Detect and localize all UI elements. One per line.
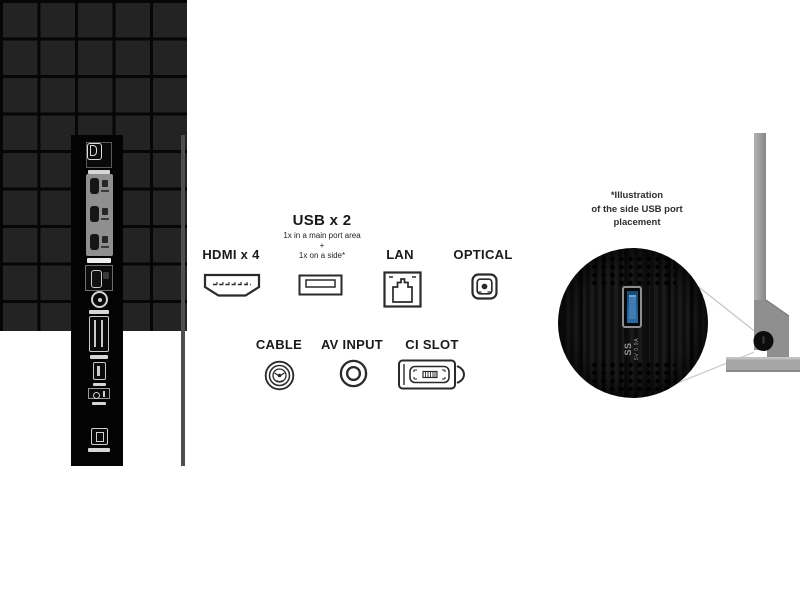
usb-label: USB x 2 [293, 212, 352, 229]
port-label-bar [90, 355, 108, 359]
hdmi-main-ports-strip [86, 174, 113, 256]
tv-stand-base [726, 357, 800, 372]
av-input-port-icon [339, 359, 368, 388]
usb-zoom-circle: SS 5V 0.9A [558, 248, 708, 398]
hdmi-port-2-icon [90, 206, 99, 222]
av-in-port-icon [88, 388, 110, 399]
usb-note-plus: + [320, 241, 325, 250]
hdmi-port-1-icon [90, 178, 99, 194]
optical-port-icon [87, 143, 102, 160]
port-gap-notch [754, 350, 767, 357]
hdmi-label: HDMI x 4 [202, 247, 259, 262]
antenna-port-icon [91, 428, 108, 445]
ci-slot-label: CI SLOT [405, 337, 458, 352]
side-usb-note: *Illustration of the side USB port place… [557, 189, 717, 230]
ci-slot-icon [397, 357, 465, 392]
ci-slot-port-icon [89, 316, 109, 352]
port-label-bar [89, 310, 109, 314]
tv-side-bar [754, 133, 766, 357]
hdmi-port-4 [85, 265, 113, 291]
port-label-bar [88, 448, 110, 452]
cable-label: CABLE [256, 337, 302, 352]
optical-label: OPTICAL [453, 247, 512, 262]
side-usb-note-line2: of the side USB port [557, 203, 717, 217]
vent-dots-top [590, 255, 676, 285]
tv-side-bulge [754, 300, 789, 357]
optical-port-icon [471, 273, 498, 300]
usb-rating-text: 5V 0.9A [634, 338, 640, 360]
side-usb-note-line3: placement [557, 216, 717, 230]
usb-port-icon [298, 274, 343, 296]
tv-ports-diagram: HDMI x 4 USB x 2 1x in a main port area … [0, 0, 800, 600]
usb-superspeed-label: SS 5V 0.9A [619, 319, 645, 379]
port-label-bar [92, 402, 106, 405]
lan-label: LAN [386, 247, 414, 262]
av-input-label: AV INPUT [321, 337, 383, 352]
usb-note-line1: 1x in a main port area [283, 231, 360, 240]
hdmi-port-3-icon [90, 234, 99, 250]
hdmi-port-4-icon [91, 270, 102, 288]
hdmi-port-icon [203, 273, 261, 298]
lan-port-icon [383, 271, 422, 308]
usb-note-line2: 1x on a side* [299, 251, 345, 260]
port-label-bar [87, 258, 111, 263]
antenna-cable-port-icon [91, 291, 108, 308]
usb-main-port-icon [93, 362, 106, 380]
side-port-location-dot [754, 331, 774, 351]
optical-port [86, 142, 112, 168]
port-label-bar [93, 383, 106, 386]
cable-port-icon [264, 360, 295, 391]
side-usb-note-line1: *Illustration [557, 189, 717, 203]
panel-edge-highlight [181, 135, 185, 466]
superspeed-ss-text: SS [624, 343, 634, 356]
